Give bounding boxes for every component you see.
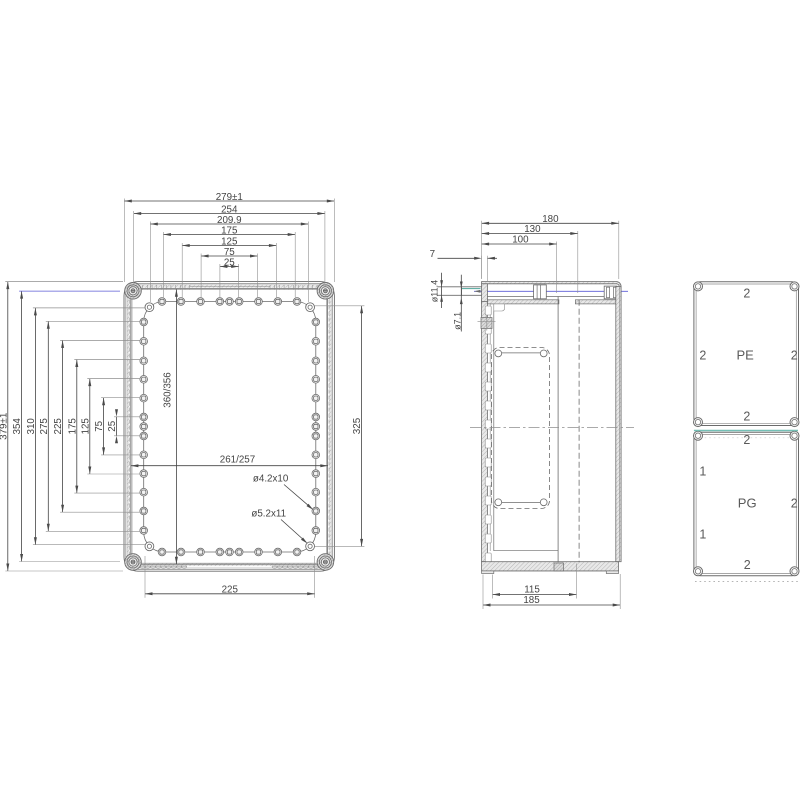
svg-text:185: 185 — [523, 595, 540, 606]
svg-text:379±1: 379±1 — [0, 413, 9, 440]
svg-text:2: 2 — [791, 496, 798, 510]
svg-text:261/257: 261/257 — [220, 455, 255, 466]
svg-text:279±1: 279±1 — [216, 192, 243, 203]
svg-text:175: 175 — [221, 225, 238, 236]
svg-text:PG: PG — [738, 495, 757, 510]
svg-text:7: 7 — [430, 249, 435, 260]
svg-text:225: 225 — [222, 584, 239, 595]
svg-text:354: 354 — [12, 418, 23, 435]
svg-text:209.9: 209.9 — [217, 215, 242, 226]
svg-text:175: 175 — [67, 418, 78, 435]
svg-text:PE: PE — [737, 348, 755, 363]
svg-text:75: 75 — [224, 247, 235, 258]
svg-text:275: 275 — [39, 418, 50, 435]
svg-text:130: 130 — [524, 224, 541, 235]
svg-text:1: 1 — [699, 465, 706, 479]
svg-text:325: 325 — [352, 417, 363, 434]
svg-text:180: 180 — [542, 214, 559, 225]
svg-text:2: 2 — [744, 558, 751, 572]
svg-text:2: 2 — [743, 409, 750, 423]
svg-text:2: 2 — [699, 349, 706, 363]
svg-text:254: 254 — [221, 204, 238, 215]
svg-text:ø5.2x11: ø5.2x11 — [251, 508, 286, 519]
svg-text:ø4.2x10: ø4.2x10 — [253, 473, 289, 484]
svg-text:ø11.4: ø11.4 — [429, 280, 439, 302]
svg-text:225: 225 — [53, 418, 64, 435]
svg-text:2: 2 — [743, 433, 750, 447]
svg-text:25: 25 — [107, 420, 118, 431]
svg-text:75: 75 — [94, 420, 105, 431]
svg-text:100: 100 — [512, 235, 529, 246]
svg-text:2: 2 — [743, 286, 750, 300]
svg-text:125: 125 — [221, 236, 238, 247]
svg-text:1: 1 — [699, 528, 706, 542]
svg-text:ø7.1: ø7.1 — [452, 312, 462, 330]
svg-text:115: 115 — [524, 585, 540, 596]
svg-text:2: 2 — [791, 349, 798, 363]
svg-text:25: 25 — [224, 257, 235, 268]
svg-text:360/356: 360/356 — [163, 372, 174, 408]
svg-text:125: 125 — [80, 418, 91, 435]
svg-text:310: 310 — [26, 418, 37, 435]
